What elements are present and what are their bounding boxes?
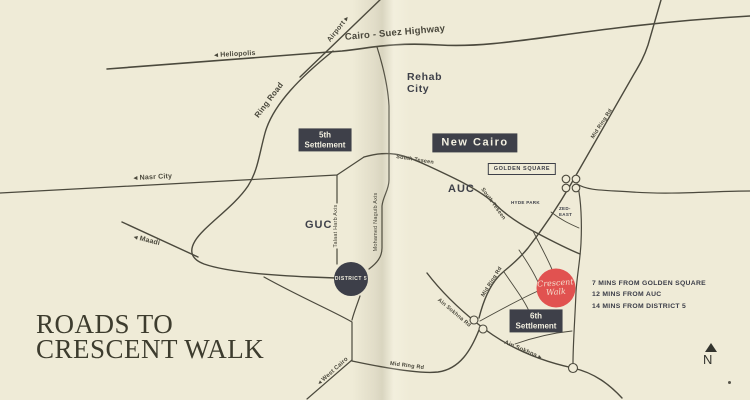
- label-rehab-city: Rehab City: [407, 71, 442, 95]
- label-zed-east: ZED- EAST: [559, 206, 572, 217]
- label-6th-settlement: 6th Settlement: [510, 309, 563, 332]
- roundabout-icon: [569, 364, 578, 373]
- map-canvas: ◂ Heliopolis Cairo - Suez Highway Airpor…: [0, 0, 750, 400]
- road-east-boundary: [573, 187, 581, 363]
- label-guc: GUC: [305, 219, 332, 231]
- north-arrow-icon: [705, 343, 717, 352]
- parcel-line-1: [533, 231, 553, 272]
- road-mid-ring-main: [479, 0, 661, 318]
- map-title: ROADS TO CRESCENT WALK: [36, 312, 264, 362]
- distance-district5: 14 MINS FROM DISTRICT 5: [592, 301, 706, 312]
- road-district-link-east: [352, 296, 360, 320]
- label-mohamed-naguib-axis: Mohamed Naguib Axis: [373, 193, 379, 252]
- parcel-line-5: [515, 331, 572, 344]
- crescent-walk-marker: Crescent Walk: [537, 269, 576, 308]
- district5-label: DISTRICT 5: [335, 276, 367, 282]
- label-5th-settlement: 5th Settlement: [299, 128, 352, 151]
- label-talaat-harb-axis: Talaat Harb Axis: [333, 205, 339, 248]
- road-mohamed-naguib-axis: [369, 47, 389, 269]
- crescent-walk-label: Crescent Walk: [537, 278, 574, 297]
- road-east-spur: [577, 184, 750, 193]
- label-hyde-park: HYDE PARK: [511, 200, 540, 205]
- district5-marker: DISTRICT 5: [334, 262, 368, 296]
- label-new-cairo: New Cairo: [432, 133, 517, 152]
- road-west-cairo: [307, 360, 352, 399]
- label-golden-square: GOLDEN SQUARE: [488, 163, 556, 175]
- road-ring-road: [192, 51, 336, 278]
- parcel-line-3: [504, 272, 529, 311]
- distance-auc: 12 MINS FROM AUC: [592, 289, 706, 300]
- distance-list: 7 MINS FROM GOLDEN SQUARE 12 MINS FROM A…: [592, 278, 706, 312]
- road-nasr-city: [0, 157, 364, 193]
- label-auc: AUC: [448, 183, 475, 195]
- distance-golden-square: 7 MINS FROM GOLDEN SQUARE: [592, 278, 706, 289]
- north-label: N: [703, 352, 712, 367]
- map-dot: [728, 381, 731, 384]
